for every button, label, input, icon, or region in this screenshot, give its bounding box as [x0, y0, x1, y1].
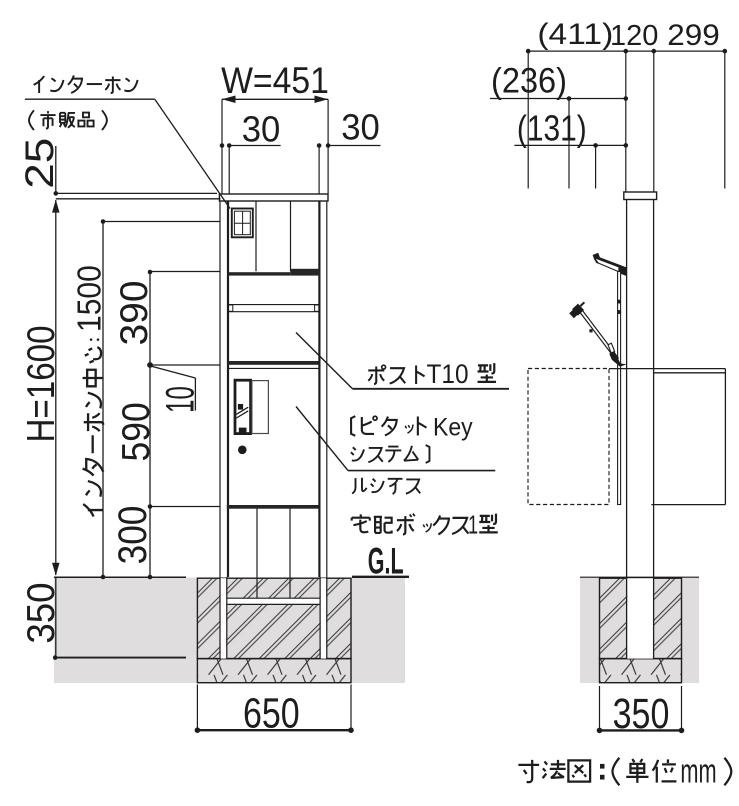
svg-text:350: 350 [613, 690, 670, 737]
svg-text:30: 30 [242, 109, 281, 150]
svg-text:299: 299 [667, 18, 720, 52]
svg-text:G.L: G.L [368, 542, 404, 582]
svg-text:350: 350 [20, 582, 63, 643]
svg-text:mm: mm [680, 753, 716, 791]
svg-text:(131): (131) [517, 109, 587, 149]
svg-text:300: 300 [110, 506, 155, 565]
svg-text:(236): (236) [491, 61, 567, 100]
svg-text:30: 30 [341, 107, 380, 148]
svg-text:120: 120 [610, 20, 658, 52]
svg-text:25: 25 [18, 138, 63, 189]
svg-text:(411): (411) [537, 17, 613, 51]
svg-text:650: 650 [243, 690, 300, 737]
svg-text:Key: Key [433, 414, 473, 442]
svg-text:590: 590 [113, 402, 157, 461]
svg-text:390: 390 [113, 280, 156, 345]
svg-text:1: 1 [468, 510, 478, 539]
svg-text:1500: 1500 [70, 265, 108, 332]
svg-text:T10: T10 [427, 360, 469, 389]
svg-text:W=451: W=451 [221, 59, 329, 101]
svg-text:H=1600: H=1600 [18, 325, 62, 442]
svg-text:10: 10 [157, 386, 202, 413]
